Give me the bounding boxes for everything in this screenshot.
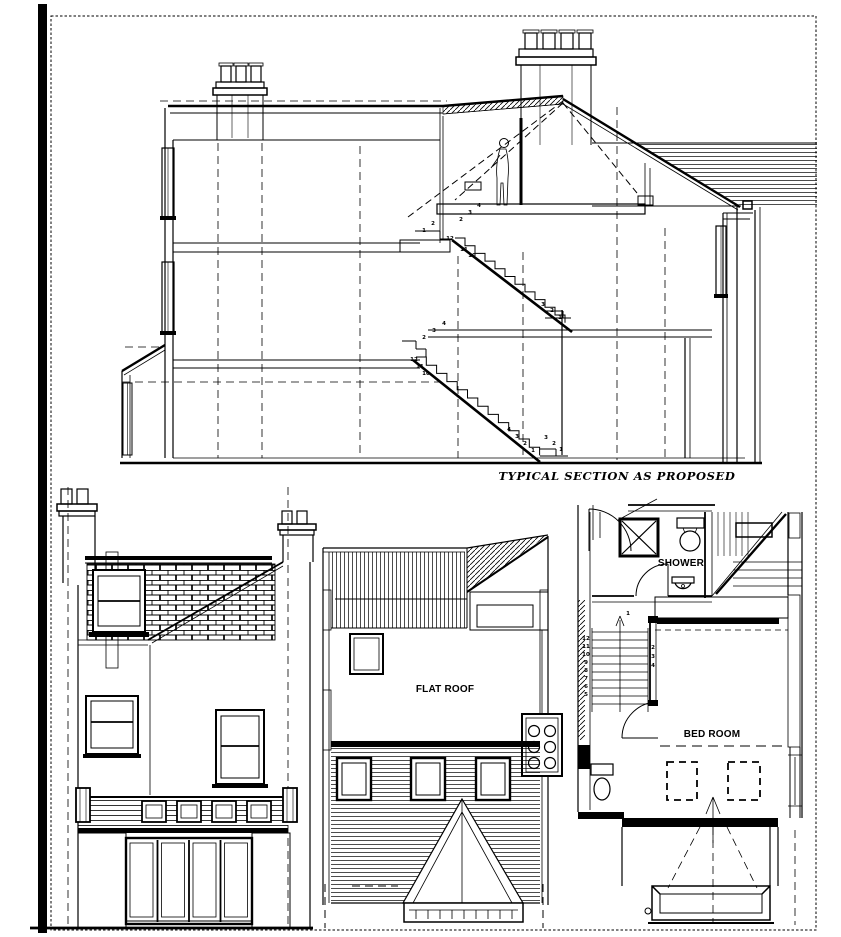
front-roof-shading [637,143,817,206]
stair-number: 11 [460,247,468,253]
stair-number: 1 [558,315,562,321]
plan-stair-numbers: 112111098765234 [582,611,655,698]
straight-stair-flight [592,616,648,712]
plan-outer-walls [578,505,802,818]
flat-roof-label: FLAT ROOF [416,684,474,695]
right-wall-hatch [788,595,800,747]
architectural-drawing-sheet: TYPICAL SECTION AS PROPOSED 121211102343… [0,0,841,937]
extension [76,788,297,928]
landing-toilet [591,764,613,800]
landing-slab [400,240,450,252]
stair-number: 2 [459,217,463,223]
stair-number: 4 [442,321,446,327]
drawing-canvas: TYPICAL SECTION AS PROPOSED 121211102343… [0,0,841,937]
stair-number: 2 [550,308,554,314]
new-dormer-roof [443,96,563,114]
room-walls-light [592,511,712,704]
rooflight-over-2 [728,762,760,800]
bed-room-label: BED ROOM [684,729,741,740]
brick-pier-left [78,833,126,928]
stair-number: 4 [651,663,655,669]
floor-plan-drawing: SHOWER BED ROOM [578,499,802,925]
roof-plan-drawing: FLAT ROOF [323,535,562,928]
outrigger-window [83,696,141,758]
wash-basin [672,577,694,589]
stair-number: 2 [552,441,556,447]
stair-number: 1 [422,228,426,234]
stair-number: 11 [416,364,424,370]
stair-number: 10 [468,253,476,259]
stair-number: 1 [626,611,630,617]
elevation-minor-lines [78,640,150,795]
stair-number: 2 [651,645,655,651]
landing-door [589,509,631,551]
toilet [677,518,704,551]
dormer-wall-lintel [657,618,779,624]
roof-windows [337,758,510,800]
dormer-wall-band [655,597,788,618]
stair-number: 3 [432,328,436,334]
stair-number: 10 [422,371,430,377]
left-wall-solid [578,745,590,769]
bay-window-plan [622,827,795,925]
landing-south-wall [578,812,624,819]
elevation-left-chimney [57,489,97,516]
stair-number: 4 [477,203,481,209]
stair-number: 11 [582,644,590,650]
shower-tray-cross [622,521,656,554]
dormer-window [89,570,149,637]
section-lower-stair-numbers: 4321211104321321 [410,321,563,454]
rooflight-over-1 [667,762,697,800]
brick-pier-right [252,833,290,928]
stair-number: 3 [541,302,545,308]
party-hatch-left-upper [323,590,331,630]
parallel-lines [124,104,745,458]
stair-number: 1 [559,447,563,453]
bedroom-south-wall [622,818,778,827]
roof-ridge-band [331,741,540,747]
dormer-flat-roof-plan [331,552,467,628]
section-windows [123,148,728,455]
stair-number: 9 [584,660,588,666]
elevation-right-chimney [278,511,316,535]
east-window [788,747,802,818]
stair-number: 10 [582,652,590,658]
binding-bar [38,4,47,933]
left-chimney [213,63,267,140]
room-walls-heavy [592,505,715,704]
bedroom-door [622,616,658,738]
shower-label: SHOWER [658,558,705,569]
section-drawing: TYPICAL SECTION AS PROPOSED 121211102343… [120,30,817,483]
stair-number: 4 [507,427,511,433]
stair-number: 12 [446,236,454,242]
stair-number: 3 [515,434,519,440]
lower-stair-flight [402,341,568,462]
stair-number: 1 [531,448,535,454]
shower-room: SHOWER [620,518,705,596]
stair-number: 2 [431,221,435,227]
stair-number: 2 [422,335,426,341]
bifold-doors [126,838,252,924]
flat-roof-rooflight [350,634,383,674]
stair-number: 8 [584,668,588,674]
party-hatch-right [540,590,548,718]
stair-number: 5 [584,692,588,698]
section-title: TYPICAL SECTION AS PROPOSED [498,469,735,483]
boundary-dashed-lines [68,487,288,928]
stair-number: 2 [523,441,527,447]
reference-dashed-lines [122,101,665,460]
purlin-rear [465,182,481,190]
stair-number: 3 [468,210,472,216]
main-house-window [212,710,268,788]
stair-number: 12 [410,357,418,363]
rear-elevation-drawing [30,487,316,928]
stair-number: 3 [544,435,548,441]
upper-stair-flight [415,231,572,332]
stair-number: 12 [582,636,590,642]
dormer-roof-band [85,556,272,560]
stair-number: 6 [584,684,588,690]
party-hatch-left-lower [323,690,331,750]
stair-number: 7 [584,676,588,682]
section-walls [122,108,755,463]
tile-band-opening [477,605,533,627]
stair-number: 3 [651,654,655,660]
corner-wall-hatch [789,513,800,538]
bedroom: BED ROOM [622,729,786,843]
